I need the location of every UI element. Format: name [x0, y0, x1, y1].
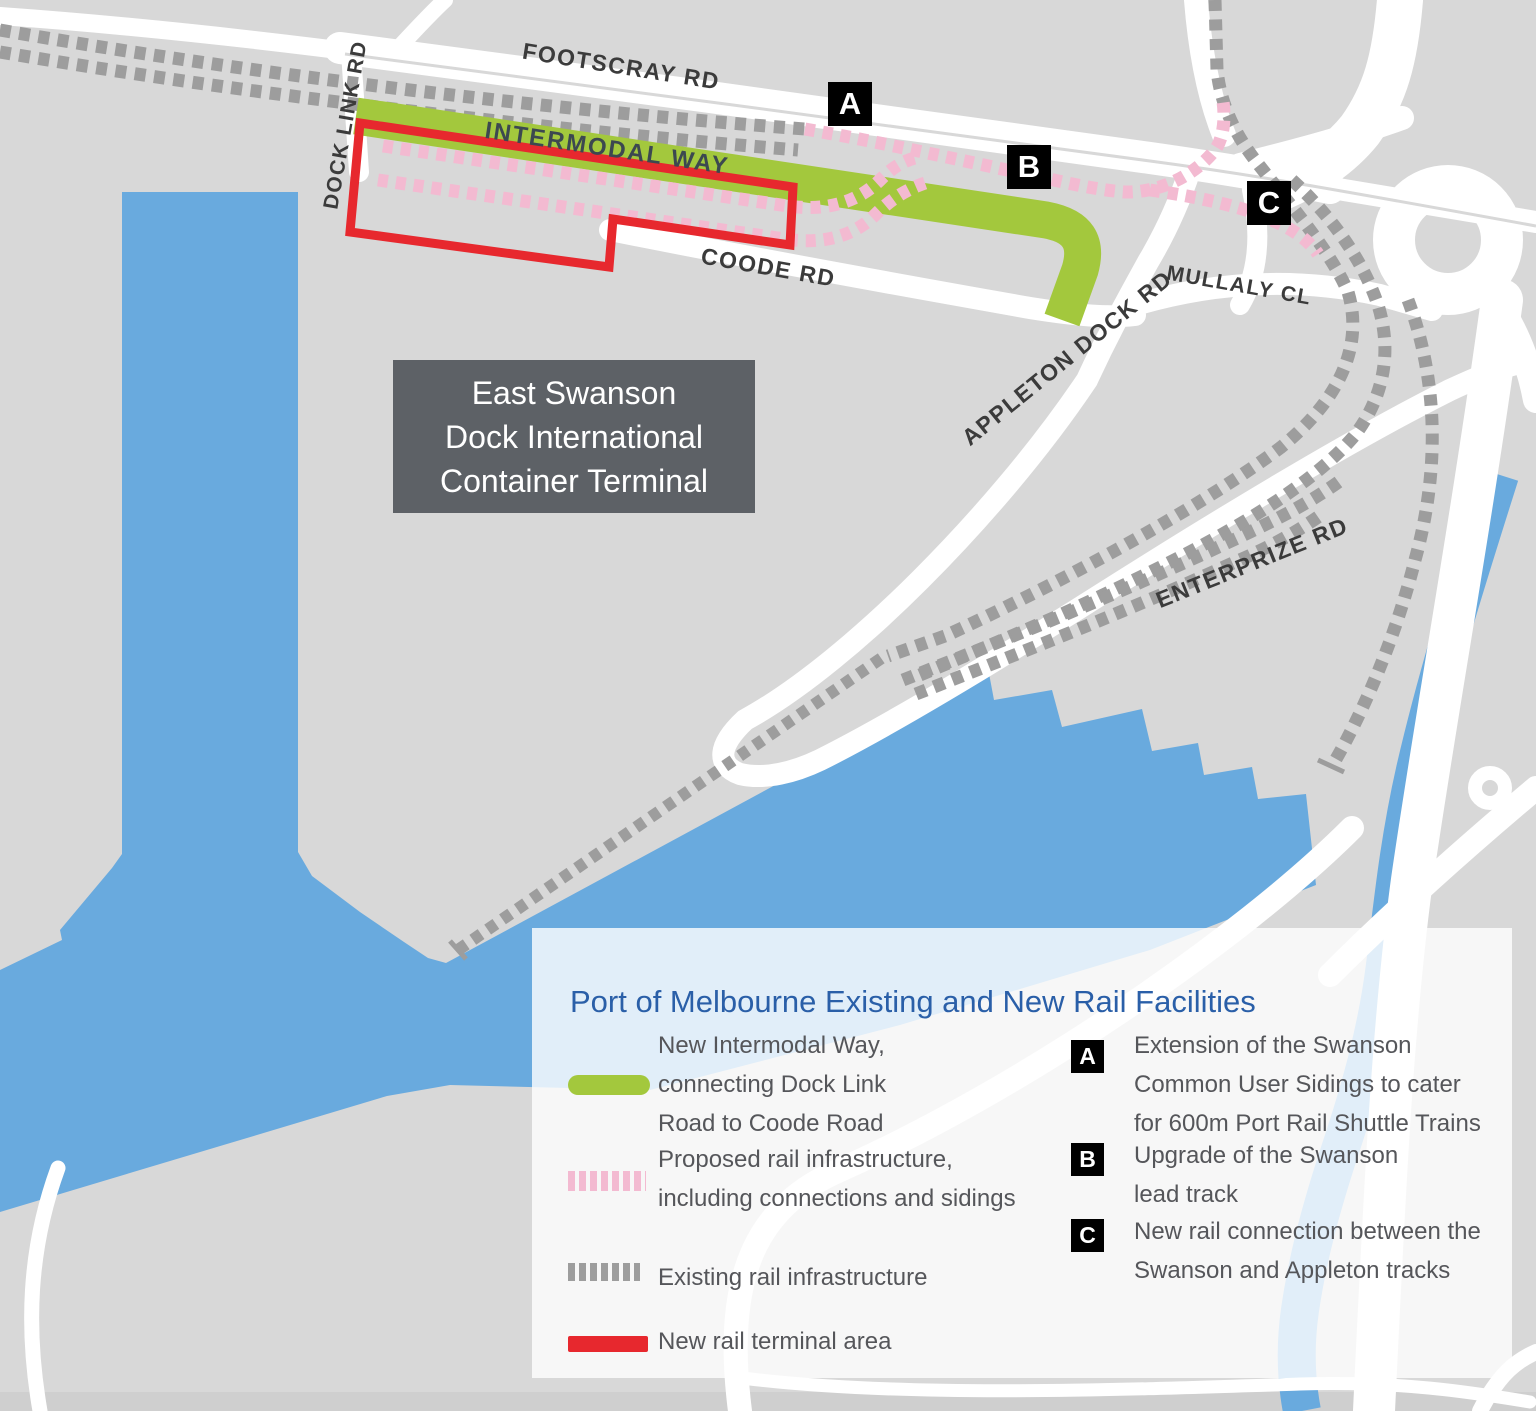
legend-item-proposed-rail: Proposed rail infrastructure, including … [658, 1140, 1016, 1218]
legend-badge-b: B [1071, 1143, 1104, 1176]
legend-item-terminal-area: New rail terminal area [658, 1322, 891, 1361]
legend-badge-c: C [1071, 1219, 1104, 1252]
map-marker-c: C [1247, 181, 1291, 225]
legend-swatch-terminal-area [568, 1336, 648, 1352]
legend-swatch-proposed-rail [568, 1171, 646, 1191]
legend-callout-a: Extension of the Swanson Common User Sid… [1134, 1026, 1481, 1143]
map-marker-a: A [828, 82, 872, 126]
legend-badge-a: A [1071, 1040, 1104, 1073]
legend-swatch-intermodal-line [568, 1075, 650, 1095]
legend-title: Port of Melbourne Existing and New Rail … [570, 984, 1256, 1020]
legend-callout-c: New rail connection between the Swanson … [1134, 1212, 1481, 1290]
map-marker-b: B [1007, 145, 1051, 189]
port-map: FOOTSCRAY RD DOCK LINK RD INTERMODAL WAY… [0, 0, 1536, 1411]
terminal-name-box: East Swanson Dock International Containe… [393, 360, 755, 513]
legend-item-intermodal: New Intermodal Way, connecting Dock Link… [658, 1026, 886, 1143]
legend-item-existing-rail: Existing rail infrastructure [658, 1258, 927, 1297]
legend-callout-b: Upgrade of the Swanson lead track [1134, 1136, 1398, 1214]
legend-swatch-existing-rail [568, 1263, 640, 1281]
